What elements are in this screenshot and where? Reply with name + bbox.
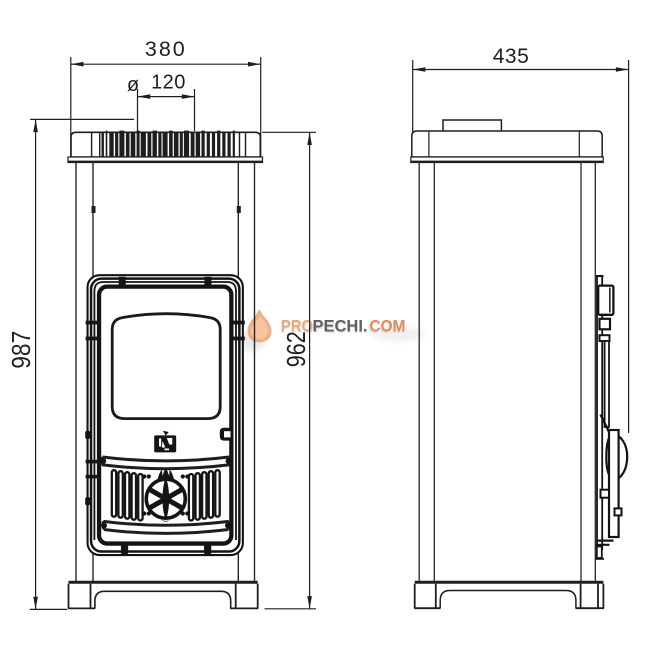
svg-text:987: 987 xyxy=(6,331,36,369)
svg-text:120: 120 xyxy=(151,72,186,94)
svg-text:ø: ø xyxy=(127,74,139,96)
svg-text:PECHI.: PECHI. xyxy=(313,317,368,336)
svg-text:435: 435 xyxy=(493,45,530,68)
svg-text:380: 380 xyxy=(145,37,187,61)
svg-text:962: 962 xyxy=(281,331,311,367)
svg-text:COM: COM xyxy=(370,317,406,336)
